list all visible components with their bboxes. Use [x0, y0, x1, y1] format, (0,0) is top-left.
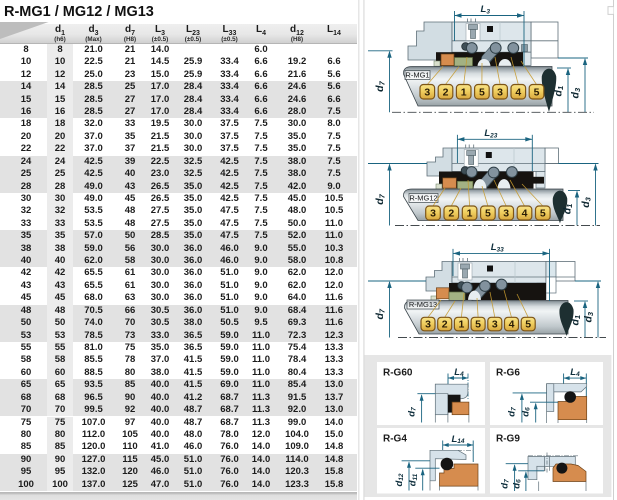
svg-text:1: 1: [467, 208, 473, 220]
svg-text:4: 4: [522, 208, 528, 220]
svg-text:2: 2: [443, 87, 449, 99]
svg-text:3: 3: [430, 208, 436, 220]
svg-text:R-MG1: R-MG1: [405, 71, 429, 80]
svg-text:L3: L3: [481, 4, 491, 16]
svg-text:2: 2: [442, 318, 448, 330]
svg-text:L23: L23: [484, 128, 497, 140]
svg-text:R-G4: R-G4: [383, 434, 407, 445]
svg-text:d3: d3: [570, 87, 583, 98]
svg-text:R-MG13: R-MG13: [409, 300, 437, 309]
svg-text:3: 3: [424, 87, 430, 99]
svg-text:4: 4: [509, 318, 515, 330]
svg-text:R-G6: R-G6: [496, 368, 520, 379]
svg-text:5: 5: [475, 318, 481, 330]
svg-text:d7: d7: [374, 193, 387, 204]
svg-text:R-MG12: R-MG12: [409, 194, 437, 203]
svg-text:3: 3: [503, 208, 509, 220]
svg-text:3: 3: [497, 87, 503, 99]
svg-text:3: 3: [492, 318, 498, 330]
svg-text:d7: d7: [374, 308, 387, 319]
svg-text:3: 3: [425, 318, 431, 330]
svg-text:R-G60: R-G60: [383, 368, 413, 379]
svg-text:2: 2: [448, 208, 454, 220]
svg-text:5: 5: [485, 208, 491, 220]
svg-text:d3: d3: [580, 196, 593, 207]
svg-text:5: 5: [525, 318, 531, 330]
svg-text:4: 4: [515, 87, 521, 99]
svg-text:R-G9: R-G9: [496, 434, 520, 445]
svg-text:d3: d3: [583, 311, 596, 322]
svg-text:5: 5: [534, 87, 540, 99]
svg-text:5: 5: [540, 208, 546, 220]
svg-text:1: 1: [458, 318, 464, 330]
svg-text:L33: L33: [491, 242, 504, 254]
svg-text:5: 5: [479, 87, 485, 99]
svg-text:1: 1: [461, 87, 467, 99]
svg-text:d7: d7: [374, 80, 387, 91]
